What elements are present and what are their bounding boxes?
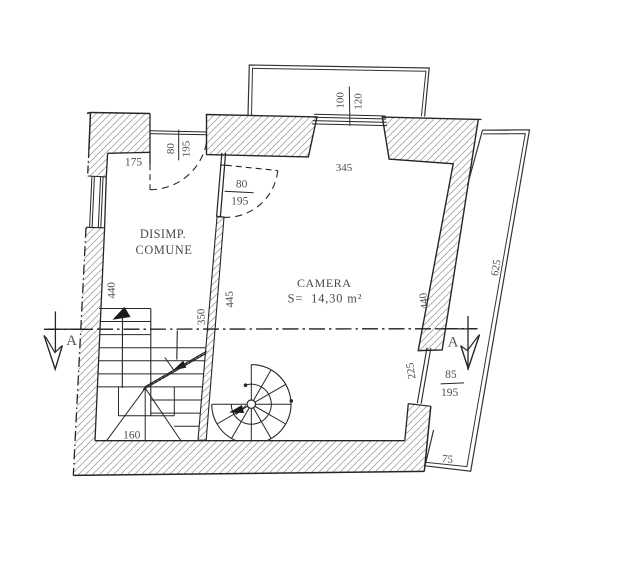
svg-text:195: 195 (441, 387, 459, 399)
svg-text:85: 85 (445, 369, 457, 381)
svg-text:445: 445 (224, 290, 237, 308)
svg-text:350: 350 (195, 308, 208, 326)
svg-text:80: 80 (236, 178, 248, 190)
svg-text:225: 225 (404, 361, 418, 380)
svg-text:100: 100 (334, 92, 346, 109)
svg-text:440: 440 (106, 281, 119, 298)
svg-text:80: 80 (165, 143, 177, 155)
svg-text:S= 14,30 m²: S= 14,30 m² (288, 291, 363, 305)
svg-text:CAMERA: CAMERA (297, 276, 351, 290)
svg-text:160: 160 (123, 430, 141, 442)
svg-text:195: 195 (231, 196, 249, 208)
svg-text:COMUNE: COMUNE (136, 243, 193, 257)
svg-text:195: 195 (181, 140, 193, 157)
svg-text:DISIMP.: DISIMP. (140, 227, 186, 241)
svg-text:440: 440 (417, 292, 431, 311)
svg-text:175: 175 (125, 157, 143, 169)
svg-text:A: A (448, 334, 459, 350)
svg-text:120: 120 (353, 93, 365, 110)
svg-text:345: 345 (336, 162, 353, 174)
svg-text:75: 75 (441, 453, 454, 466)
svg-text:A: A (66, 333, 77, 349)
